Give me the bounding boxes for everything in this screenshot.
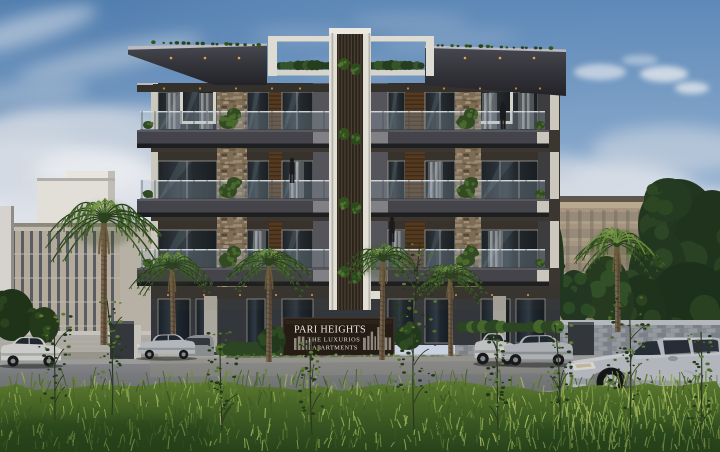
svg-text:PARI HEIGHTS: PARI HEIGHTS <box>294 325 366 336</box>
